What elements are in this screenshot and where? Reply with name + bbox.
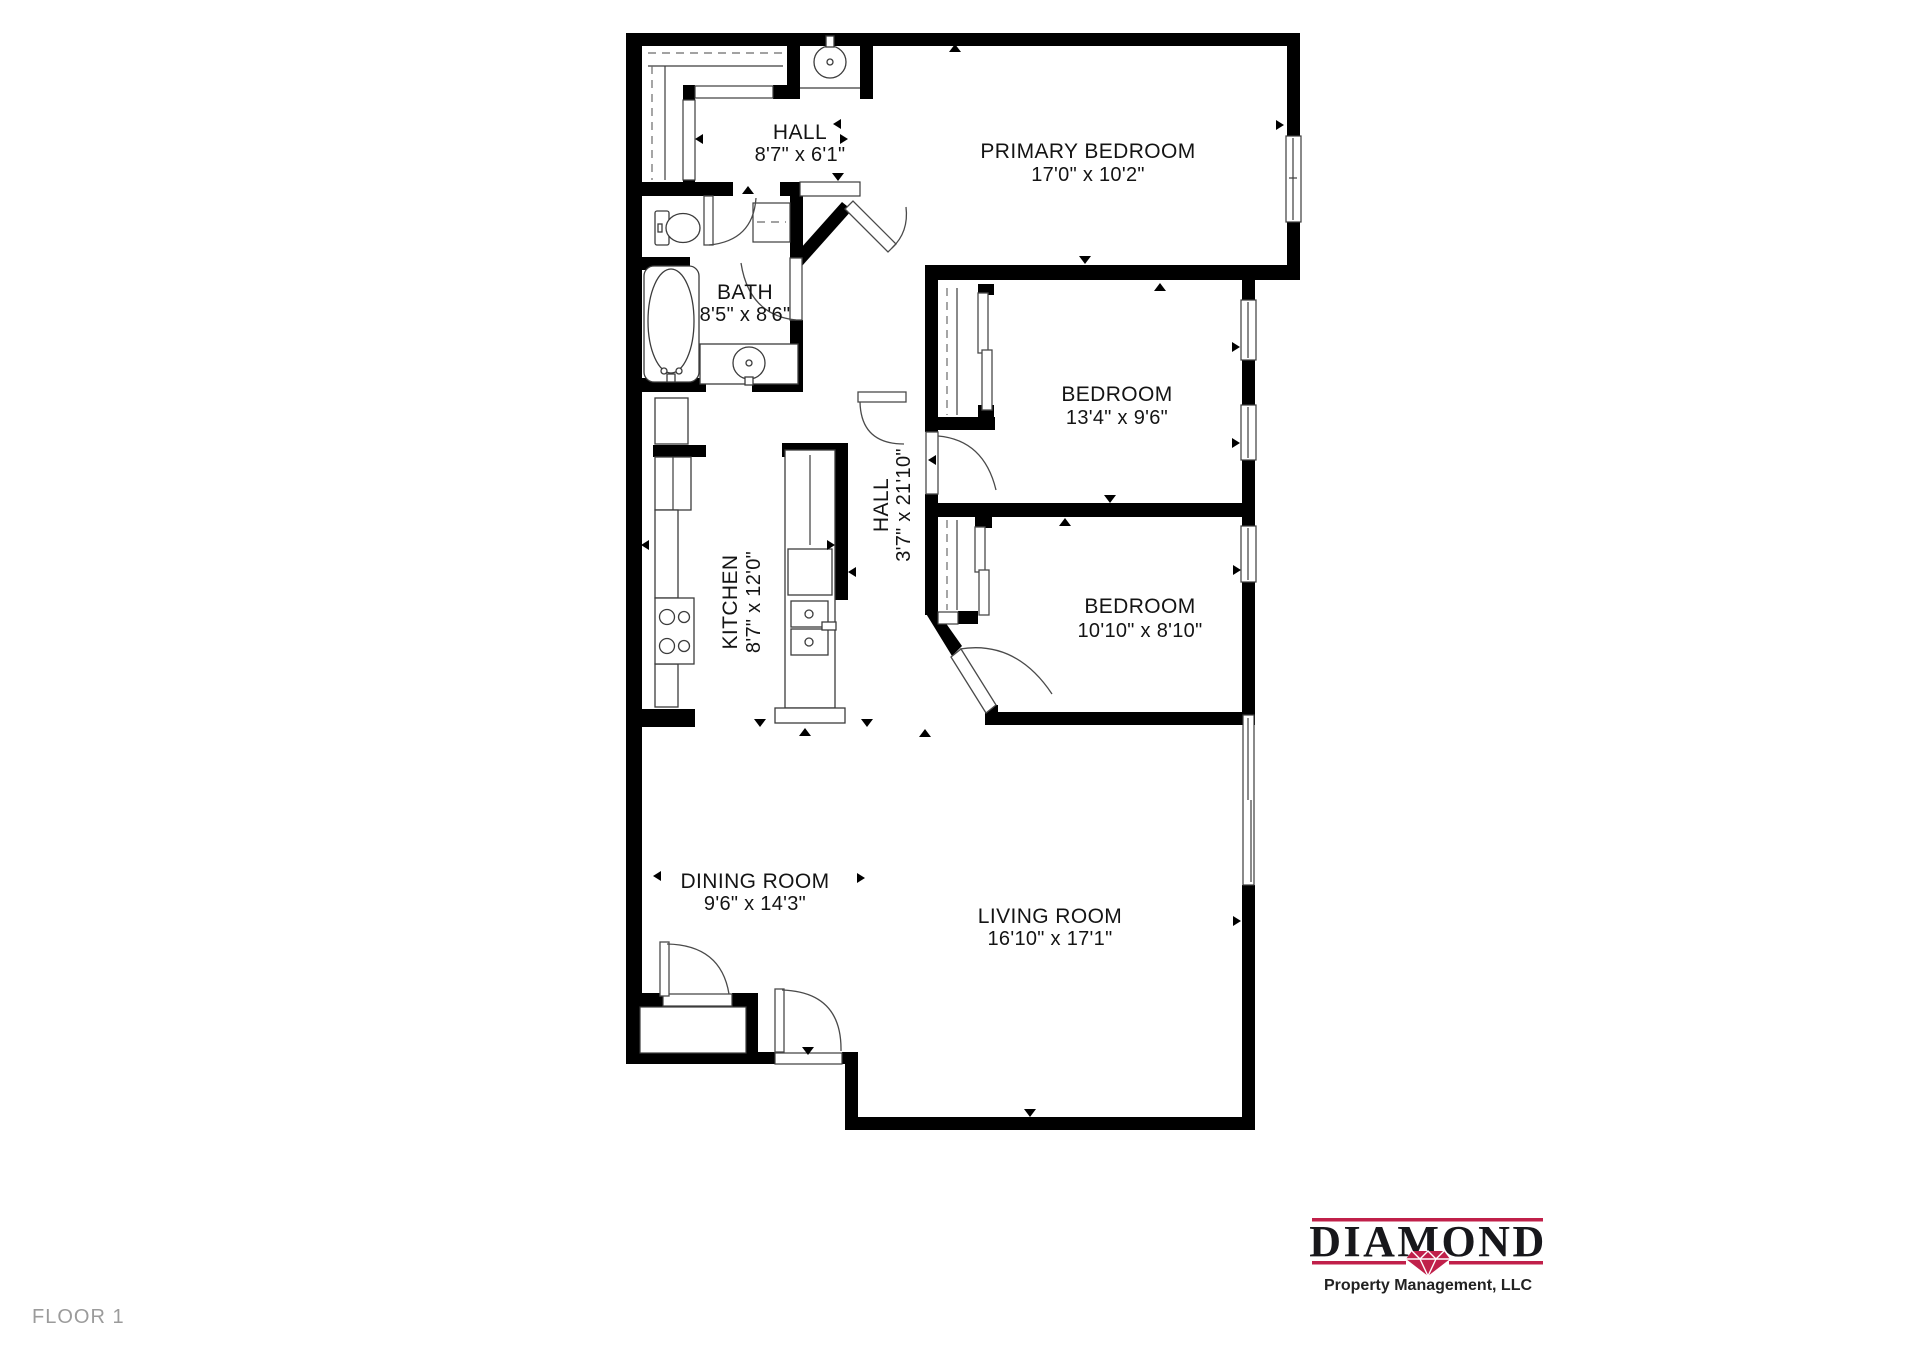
bath-vanity-sink xyxy=(700,344,798,385)
room-dims-hall-vertical: 3'7" x 21'10" xyxy=(893,448,915,562)
room-dims-bedroom1: 13'4" x 9'6" xyxy=(1066,407,1168,429)
diamond-gem-icon xyxy=(1406,1251,1450,1276)
logo-rule-left xyxy=(1312,1261,1406,1265)
window-living-room xyxy=(1243,715,1254,885)
dining-entry-door xyxy=(660,942,732,1006)
room-label-bedroom2: BEDROOM xyxy=(1084,595,1195,618)
bedroom2-closet xyxy=(938,517,992,624)
closet-opening-hall xyxy=(695,86,773,98)
room-label-bedroom1: BEDROOM xyxy=(1061,383,1172,406)
room-labels: HALL 8'7" x 6'1" PRIMARY BEDROOM 17'0" x… xyxy=(680,121,1202,950)
refrigerator xyxy=(655,457,691,510)
window-bedroom1-b xyxy=(1241,405,1256,460)
room-dims-bath: 8'5" x 8'6" xyxy=(700,304,791,326)
room-dims-primary-bedroom: 17'0" x 10'2" xyxy=(1031,164,1145,186)
room-label-living-room: LIVING ROOM xyxy=(978,905,1122,928)
stove xyxy=(655,598,694,664)
bathtub xyxy=(644,266,699,382)
hall-kitchen-door xyxy=(858,392,906,444)
window-primary-bedroom xyxy=(1286,136,1301,222)
room-dims-bedroom2: 10'10" x 8'10" xyxy=(1077,620,1202,642)
room-dims-kitchen: 8'7" x 12'0" xyxy=(743,551,765,653)
laundry-nook xyxy=(655,398,688,444)
closet-partition xyxy=(683,100,695,180)
floor-plan: HALL 8'7" x 6'1" PRIMARY BEDROOM 17'0" x… xyxy=(0,0,1920,1358)
window-bedroom2 xyxy=(1241,526,1256,582)
floor-label: FLOOR 1 xyxy=(32,1306,125,1328)
company-logo: DIAMOND Property Management, LLC xyxy=(1309,1217,1546,1294)
linen-closet xyxy=(753,203,790,242)
bedroom1-door xyxy=(926,432,996,494)
kitchen-peninsula xyxy=(775,450,845,723)
floor-plan-page: HALL 8'7" x 6'1" PRIMARY BEDROOM 17'0" x… xyxy=(0,0,1920,1358)
primary-bedroom-door xyxy=(845,201,906,252)
room-dims-hall-top: 8'7" x 6'1" xyxy=(755,144,846,166)
room-label-hall-top: HALL xyxy=(773,121,827,144)
room-label-primary-bedroom: PRIMARY BEDROOM xyxy=(980,140,1195,163)
bedroom1-closet xyxy=(947,284,994,417)
toilet xyxy=(655,211,700,245)
toilet-room-door xyxy=(704,196,756,245)
logo-rule-right xyxy=(1449,1261,1543,1265)
room-label-bath: BATH xyxy=(717,281,773,304)
room-label-dining-room: DINING ROOM xyxy=(680,870,829,893)
bedroom2-door xyxy=(951,648,1052,713)
room-label-hall-vertical: HALL xyxy=(870,478,893,532)
entry-vestibule xyxy=(640,1007,746,1053)
window-bedroom1-a xyxy=(1241,300,1256,360)
room-label-kitchen: KITCHEN xyxy=(719,555,742,650)
cased-opening-hall-primary xyxy=(800,182,860,196)
room-dims-dining-room: 9'6" x 14'3" xyxy=(704,893,806,915)
room-dims-living-room: 16'10" x 17'1" xyxy=(987,928,1112,950)
logo-tagline: Property Management, LLC xyxy=(1324,1277,1532,1294)
